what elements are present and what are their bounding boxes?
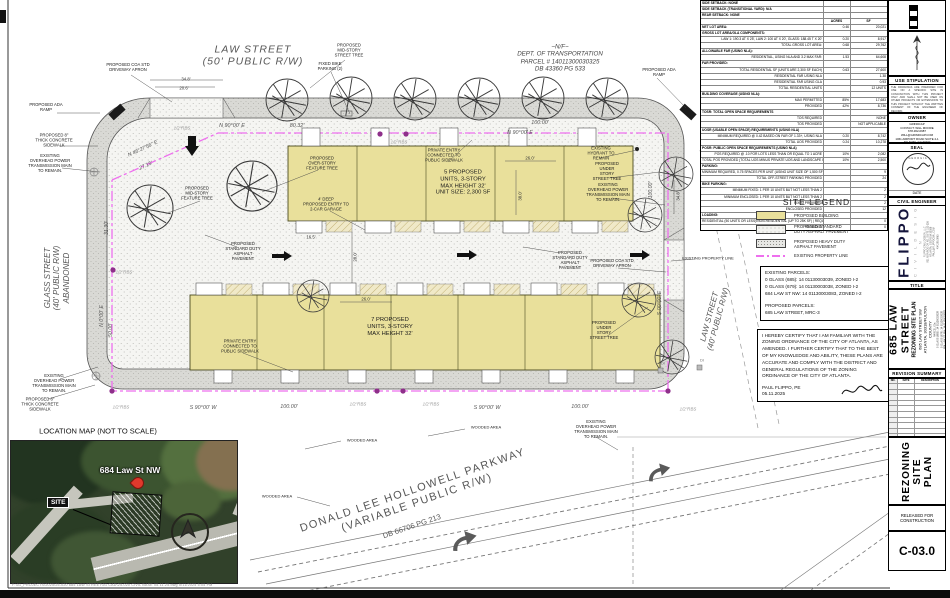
graphic-scale-box: GRAPHIC 10 0 1 inch = 20 ft. <box>888 0 946 31</box>
rebar-pin-icon <box>374 388 379 393</box>
callout-hydrant: EXISTING HYDRANT TO REMAIN <box>588 147 615 162</box>
seal-box: SEAL GEORGIA DATE <box>888 143 946 197</box>
standard-asphalt-swatch <box>756 225 786 234</box>
legend-label: PROPOSED STANDARD DUTY ASPHALT PAVEMENT <box>794 224 849 235</box>
di-2: DI <box>700 359 704 364</box>
revision-rows <box>889 383 945 437</box>
rbs-6: 1/2"RBS <box>423 401 440 406</box>
dim-165: 16.5' <box>306 234 315 239</box>
site-table-row: POSR: PUBLIC OPEN SPACE REQUIREMENTS (US… <box>701 145 887 151</box>
parcels-line: EXISTING PARCELS: <box>765 270 884 277</box>
revision-col-desc: DESCRIPTION <box>915 379 945 383</box>
site-table-row: MINIMUM REQUIRED, 0.75 SPACES PER UNIT (… <box>701 169 887 175</box>
site-table-row: RESIDENTIAL FAR USING GLA0.93 <box>701 79 887 85</box>
released-text: RELEASED FOR CONSTRUCTION <box>889 513 945 523</box>
scale-bar <box>909 5 918 29</box>
title-header-box: TITLE <box>888 281 946 289</box>
legend-item-property-line: EXISTING PROPERTY LINE <box>756 253 889 258</box>
seal-title: SEAL <box>889 144 945 152</box>
wooded-area-3: WOODED AREA <box>262 495 292 500</box>
site-table-row: TOS REQUIREDNONE <box>701 115 887 121</box>
seal-date-label: DATE <box>889 190 945 195</box>
callout-midstory-street-tree: PROPOSED MID-STORY STREET TREE <box>335 44 364 59</box>
revision-col-date: DATE <box>898 379 915 383</box>
engineer-firm-sub: C I V I L D E S I G N <box>912 205 922 277</box>
callout-understory-tree-se: PROPOSED UNDER STORY STREET TREE <box>590 321 619 341</box>
callout-overstory-feature-tree: PROPOSED OVER-STORY FEATURE TREE <box>306 157 338 172</box>
location-map-title: LOCATION MAP (NOT TO SCALE) <box>39 428 157 437</box>
use-stipulation-title: USE STIPULATION <box>889 77 945 85</box>
dim-348-right: 34.8' <box>675 191 680 200</box>
legend-item-building: PROPOSED BUILDING <box>756 211 889 220</box>
rbs-3: 1/2"RBS <box>116 269 133 274</box>
site-table-row: RESIDENTIAL FAR USING NLA1.38 <box>701 73 887 79</box>
rebar-pin-icon <box>403 131 408 136</box>
bottom-bar <box>0 590 950 598</box>
project-title-box: 685 LAW STREET REZONING SITE PLAN 685 LA… <box>888 289 946 369</box>
owner-box: OWNER GRINDCAP CONTACT: WILL MOORE 678-3… <box>888 113 946 143</box>
callout-understory-tree-ne: PROPOSED UNDER STORY STREET TREE <box>593 162 622 182</box>
callout-power-sw: EXISTING OVERHEAD POWER TRANSMISSION MAI… <box>32 374 76 394</box>
callout-ada-ramp-right: PROPOSED ADA RAMP <box>642 68 675 78</box>
site-table-row: TOTAL RESIDENTIAL UNITS12 UNITS <box>701 85 887 91</box>
site-table-row: TOTAL GROSS LOT AREA:0.6829,762 <box>701 42 887 48</box>
north-arrow-ornament-icon <box>889 32 945 75</box>
dim-348-top: 34.8' <box>181 76 190 81</box>
site-table-row: SIDE SETBACK: NONE <box>701 1 887 6</box>
certification-date: 05.11.2025 <box>762 391 801 398</box>
heavy-asphalt-swatch <box>756 239 786 248</box>
bearing-s90-1: S 90°00' W <box>190 405 217 411</box>
wooded-area-2: WOODED AREA <box>471 426 501 431</box>
engineer-firm-logo: FLIPPO <box>895 205 912 277</box>
legend-item-heavy-asphalt: PROPOSED HEAVY DUTY ASPHALT PAVEMENT <box>756 239 889 250</box>
callout-bike-parking: FIXED BIKE PARKING (2) <box>318 62 343 72</box>
site-table-row: POS REQUIRED @ .10 FOR LOTS LESS THAN OR… <box>701 151 887 157</box>
callout-private-entry-top: PRIVATE ENTRY CONNECTED TO PUBLIC SIDEWA… <box>425 149 463 164</box>
site-table-row: PROVIDED42%8,736 <box>701 103 887 109</box>
dist-100-sw2: 100.00' <box>571 404 589 410</box>
parcels-line: 0 GLASS (685): 14 01130003039, ZONED I-2 <box>765 277 884 284</box>
sheet-name-box: REZONING SITE PLAN <box>888 437 946 505</box>
site-table-row: BIKE PARKING: <box>701 181 887 187</box>
use-stipulation-body: THE DRAWINGS ARE PREPARED FOR USE ON A S… <box>889 85 945 113</box>
dot-parcel-label: ~N/F~ DEPT. OF TRANSPORTATION PARCEL # 1… <box>517 43 603 72</box>
di-1: DI <box>661 362 665 367</box>
rebar-pin-icon <box>109 388 114 393</box>
site-table-row: BUILDING COVERAGE (USING NLA): <box>701 91 887 97</box>
signature <box>840 384 884 398</box>
rbs-5: 1/2"RBS <box>350 401 367 406</box>
engineer-box: CIVIL ENGINEER FLIPPO C I V I L D E S I … <box>888 197 946 281</box>
dim-380: 38.0' <box>517 191 522 200</box>
dist-100-sw1: 100.00' <box>280 404 298 410</box>
callout-midstory-feature-tree: PROPOSED MID-STORY FEATURE TREE <box>181 187 213 202</box>
legend-label: EXISTING PROPERTY LINE <box>794 253 848 258</box>
rbs-1: 1/2"RBS <box>174 125 191 130</box>
use-stipulation-box: USE STIPULATION THE DRAWINGS ARE PREPARE… <box>888 76 946 113</box>
north-arrow-icon <box>171 513 209 551</box>
file-path-text: F:\01_PROJECTS\2025\25-020 685 LAW STREE… <box>12 583 212 587</box>
bearing-n0: N 0°00' E <box>99 305 105 327</box>
site-table-row: RESIDENTIAL, USING NLA AND 3.2 MAX FAR:1… <box>701 54 887 60</box>
site-table-row: TOS PROVIDEDNOT APPLICABLE <box>701 121 887 127</box>
parcels-box: EXISTING PARCELS: 0 GLASS (685): 14 0113… <box>760 266 889 320</box>
bearing-s0: S 00°00' E <box>657 291 663 315</box>
sheet-number-box: C-03.0 <box>888 531 946 571</box>
parcels-line: PROPOSED PARCELS: <box>765 303 884 310</box>
corner-mark <box>0 10 6 23</box>
engineer-line: PAUL@FLIPPOCIVIL.COM <box>933 221 936 262</box>
dim-206: 20.6' <box>179 85 188 90</box>
revision-summary-box: REVISION SUMMARY NO. DATE DESCRIPTION <box>888 369 946 437</box>
site-table-row: SIDE SETBACK (TRANSITIONAL YARD): N/A <box>701 6 887 12</box>
callout-sidewalk-nw: PROPOSED 8" THICK CONCRETE SIDEWALK <box>35 134 72 149</box>
parcels-line: 0 GLASS (679): 14 01130003038, ZONED I-2 <box>765 284 884 291</box>
site-table-row: MINIMUM REQUIRED @ 0.42 BASED ON FAR OF … <box>701 133 887 139</box>
site-plan-sheet: LAW STREET (50' PUBLIC R/W)GLASS STREET … <box>0 0 950 598</box>
certification-text: I HEREBY CERTIFY THAT I AM FAMILIAR WITH… <box>762 333 884 381</box>
legend-item-standard-asphalt: PROPOSED STANDARD DUTY ASPHALT PAVEMENT <box>756 224 889 235</box>
legend-label: PROPOSED BUILDING <box>794 213 839 218</box>
revision-col-no: NO. <box>889 379 898 383</box>
map-street-label: 684 Law St NW <box>55 465 205 475</box>
callout-private-entry-bottom: PRIVATE ENTRY CONNECTED TO PUBLIC SIDEWA… <box>221 340 259 355</box>
callout-power-se: EXISTING OVERHEAD POWER TRANSMISSION MAI… <box>574 420 618 440</box>
dim-260-top: 26.0' <box>525 155 534 160</box>
dist-100-east: 100.00' <box>648 182 654 199</box>
callout-power-nw: EXISTING OVERHEAD POWER TRANSMISSION MAI… <box>28 154 72 174</box>
engineer-name: PAUL FLIPPO, PE <box>762 385 801 392</box>
rebar-pin-icon <box>377 131 382 136</box>
rbs-7: 1/2"RBS <box>680 406 697 411</box>
project-name: 685 LAW STREET <box>888 301 912 357</box>
owner-title: OWNER <box>889 114 945 122</box>
bearing-n90-2: N 90°00' E <box>507 130 533 136</box>
map-site-parcel <box>110 491 163 536</box>
site-table-row: TOTAL RESIDENTIAL SF (UNITS ARE 2,300 SF… <box>701 67 887 73</box>
dist-8032: 80.32' <box>290 123 305 129</box>
engineer-seal: GEORGIA <box>902 153 934 185</box>
legend-label: PROPOSED HEAVY DUTY ASPHALT PAVEMENT <box>794 239 845 250</box>
callout-driveway-apron-right: PROPOSED COA STD DRIVEWAY APRON <box>590 259 633 269</box>
dist-3130: 31.30' <box>104 221 110 235</box>
site-table-row: FAR PROVIDED: <box>701 60 887 66</box>
sheet-number: C-03.0 <box>889 544 945 558</box>
site-table-row: PARKING: <box>701 163 887 169</box>
parcels-line: 684 LAW ST NW: 14 01130003083, ZONED I-2 <box>765 291 884 298</box>
building-swatch <box>756 211 786 220</box>
released-box: RELEASED FOR CONSTRUCTION <box>888 505 946 531</box>
label-7-units: 7 PROPOSED UNITS, 3-STORY MAX HEIGHT 32' <box>367 317 413 337</box>
site-table-row: ACRESSF <box>701 18 887 24</box>
site-table-row: TOTAL POS PROVIDED (TOTAL UOS MINUS PRIV… <box>701 157 887 163</box>
dist-5000: 50.00' <box>108 323 114 337</box>
site-table-row: MINIMUM FIXED: 1 PER 10 UNITS BUT NOT LE… <box>701 187 887 193</box>
revision-title: REVISION SUMMARY <box>889 370 945 378</box>
sheet-name: REZONING SITE PLAN <box>901 441 934 502</box>
site-table-row: TOTAL UOS PROVIDED0.2410,278 <box>701 139 887 145</box>
site-table-row: REAR SETBACK: NONE <box>701 12 887 18</box>
callout-power-ne: EXISTING OVERHEAD POWER TRANSMISSION MAI… <box>586 183 630 203</box>
bearing-s90-2: S 90°00' W <box>474 405 501 411</box>
callout-garage-entry: 4' DEEP PROPOSED ENTRY TO 2-CAR GARAGE <box>303 198 349 213</box>
site-table-row: TOTAL OFF-STREET PARKING PROVIDED24 <box>701 175 887 181</box>
callout-asphalt-west: PROPOSED STANDARD DUTY ASPHALT PAVEMENT <box>225 242 260 262</box>
callout-asphalt-east: PROPOSED STANDARD DUTY ASPHALT PAVEMENT <box>552 251 587 271</box>
site-table-row: TOSR: TOTAL OPEN SPACE REQUIREMENTS <box>701 109 887 115</box>
site-table-row: NET LOT AREA:0.4620,021 <box>701 24 887 30</box>
engineer-line: 404.295.0963 <box>936 221 939 262</box>
dim-260-bot: 26.0' <box>361 296 370 301</box>
callout-ada-ramp-left: PROPOSED ADA RAMP <box>29 103 62 113</box>
site-table-row: LAW 1: 190.3 AT X 25', LAW 2: 100 AT X 2… <box>701 36 887 42</box>
law-street-50-label: LAW STREET (50' PUBLIC R/W) <box>203 44 304 69</box>
site-table-row: ALLOWABLE FAR (USING NLA): <box>701 48 887 54</box>
property-line-swatch <box>756 255 786 257</box>
label-5-units: 5 PROPOSED UNITS, 3-STORY MAX HEIGHT 32'… <box>436 169 491 196</box>
rbs-4: 1/2"RBS <box>113 404 130 409</box>
north-ornament-box <box>888 31 946 76</box>
dist-100-top: 100.00' <box>531 120 549 126</box>
callout-property-line: EXISTING PROPERTY LINE <box>682 257 734 262</box>
rebar-pin-icon <box>400 388 405 393</box>
parcels-line: 685 LAW STREET, MRC-3 <box>765 310 884 317</box>
bearing-n90-1: N 90°00' E <box>219 123 245 129</box>
site-table-row: MAX PERMITTED85%17,683 <box>701 97 887 103</box>
site-table-row: UOSR (USABLE OPEN SPACE) REQUIREMENTS (U… <box>701 127 887 133</box>
rebar-pin-icon <box>665 388 670 393</box>
map-site-label: SITE <box>47 497 69 508</box>
wooded-area-1: WOODED AREA <box>347 439 377 444</box>
dim-280: 28.0' <box>352 252 357 261</box>
glass-street-label: GLASS STREET (40' PUBLIC R/W) ABANDONED <box>43 246 71 311</box>
certification-box: I HEREBY CERTIFY THAT I AM FAMILIAR WITH… <box>757 329 889 403</box>
callout-driveway-apron-top: PROPOSED COA STD DRIVEWAY APRON <box>106 63 149 73</box>
project-parcel-line: 684 LAW ST NW: 14 01130003083 <box>943 310 946 349</box>
project-city: ATLANTA, 30318/FULTON COUNTY <box>923 301 933 357</box>
site-table-row: GROSS LOT AREA/GLA COMPONENTS: <box>701 30 887 36</box>
title-header: TITLE <box>889 282 945 289</box>
location-map: 684 Law St NW SITE <box>10 440 238 584</box>
site-legend: SITE LEGEND PROPOSED BUILDING PROPOSED S… <box>744 197 889 402</box>
site-legend-title: SITE LEGEND <box>744 197 889 207</box>
rbs-2: 1/2"RBS <box>391 139 408 144</box>
callout-sidewalk-sw: PROPOSED 8" THICK CONCRETE SIDEWALK <box>21 398 58 413</box>
